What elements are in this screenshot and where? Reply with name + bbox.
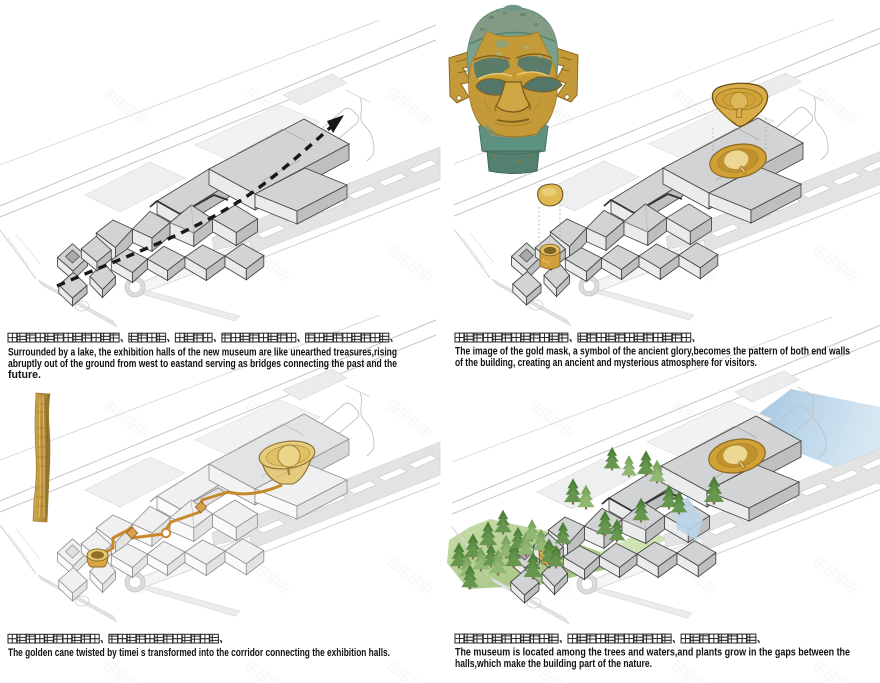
svg-text:The museum is located among th: The museum is located among the trees an… xyxy=(455,647,850,659)
svg-text:Surrounded by a lake, the exhi: Surrounded by a lake, the exhibition hal… xyxy=(8,347,397,359)
svg-text:halls,which make the building: halls,which make the building part of th… xyxy=(455,658,652,670)
svg-text:of the building, creating an a: of the building, creating an ancient and… xyxy=(455,357,757,369)
svg-text:abruptly out of the ground fro: abruptly out of the ground from west to … xyxy=(8,358,397,370)
svg-text:The golden cane twisted by tim: The golden cane twisted by timei s trans… xyxy=(8,647,390,659)
svg-text:The image of the gold mask, a: The image of the gold mask, a symbol of … xyxy=(455,346,850,358)
svg-text:future.: future. xyxy=(8,369,41,381)
